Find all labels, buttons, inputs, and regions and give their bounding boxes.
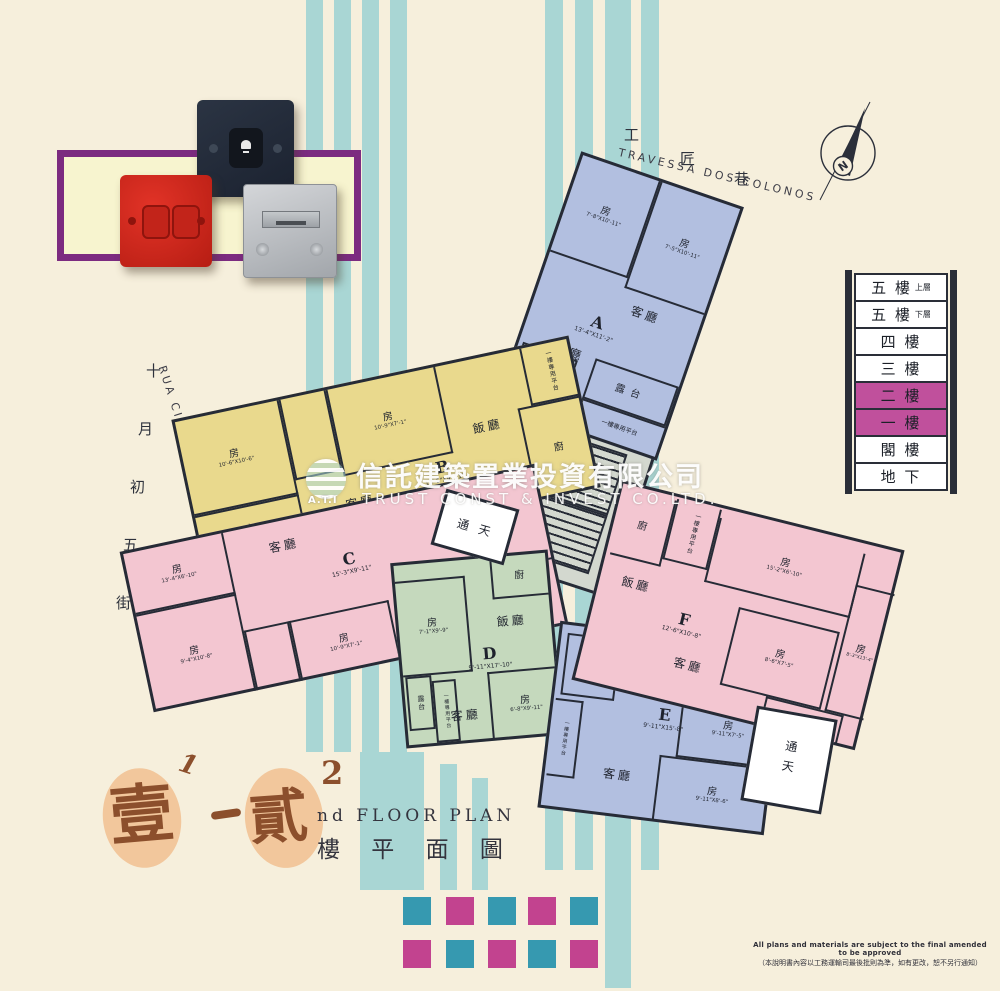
light-well: 通天 xyxy=(740,706,837,815)
street-name-cn: 初 xyxy=(130,476,145,497)
pattern-square xyxy=(528,940,556,968)
unit-label: A 13'-4"X11'-2" xyxy=(573,309,619,345)
screw-icon xyxy=(310,243,323,256)
bell-button xyxy=(229,128,263,168)
bedroom: 房 9'-4"X10'-8" xyxy=(136,594,256,712)
bell-icon-base xyxy=(243,151,249,153)
dining-room-label: 飯廳 xyxy=(496,611,527,631)
title-en: nd FLOOR PLAN xyxy=(317,806,515,826)
title-superscript-1: 1 xyxy=(175,748,201,782)
pattern-square xyxy=(403,897,431,925)
slot-opening xyxy=(276,221,306,225)
bell-icon xyxy=(241,140,251,149)
fuse-slot xyxy=(262,211,320,228)
silver-switch-photo xyxy=(243,184,337,278)
dining-room-label: 飯廳 xyxy=(471,414,504,437)
company-logo-text: A.T.I xyxy=(308,495,338,506)
bedroom: 房 8'-6"X7'-5" xyxy=(720,607,840,710)
title-superscript-2: 2 xyxy=(321,754,343,792)
bedroom: 房 15'-2"X6'-10" xyxy=(704,518,866,618)
red-switch-photo xyxy=(120,175,212,267)
page-title: 壹 1 貳 2 nd FLOOR PLAN 樓 平 面 圖 xyxy=(95,756,515,886)
street-name-cn: 月 xyxy=(138,418,153,439)
unit-label: C 15'-3"X9'-11" xyxy=(328,547,372,579)
private-flat-roof: 一樓專用平台 xyxy=(519,339,580,406)
title-char-2: 貳 xyxy=(246,768,310,856)
title-char-1: 壹 xyxy=(105,761,177,858)
living-room-label: 客廳 xyxy=(672,653,705,677)
living-room-label: 客廳 xyxy=(629,302,663,328)
screw-icon xyxy=(256,243,269,256)
pattern-square xyxy=(446,940,474,968)
company-logo-icon xyxy=(306,459,346,499)
bedroom: 房 10'-9"X7'-1" xyxy=(289,600,401,681)
title-dash xyxy=(211,808,242,820)
pattern-square xyxy=(403,940,431,968)
unit-label: D 9'-11"X17'-10" xyxy=(467,644,513,672)
legend-floor-row-highlighted: 二 樓 xyxy=(854,381,948,408)
screw-icon xyxy=(128,217,136,225)
company-name-en: TRUST CONST & INVEST CO.LTD. xyxy=(362,490,718,508)
living-room-label: 客廳 xyxy=(602,764,634,785)
pattern-square xyxy=(446,897,474,925)
legend-floor-row: 地 下 xyxy=(854,462,948,491)
dining-room-label: 飯廳 xyxy=(620,572,653,596)
brochure-page: 工 匠 巷 TRAVESSA DOS COLONOS 十 月 初 五 街 RUA… xyxy=(0,0,1000,991)
pattern-square xyxy=(570,940,598,968)
disclaimer-en: All plans and materials are subject to t… xyxy=(748,941,992,957)
floor-legend: 五 樓 上層 五 樓 下層 四 樓 三 樓 二 樓 一 樓 閣 樓 地 下 xyxy=(845,270,957,494)
pattern-square xyxy=(570,897,598,925)
bedroom: 房 7'-1"X9'-9" xyxy=(395,576,473,678)
private-flat-roof: 一樓專用平台 xyxy=(546,698,583,779)
screw-icon xyxy=(209,144,218,153)
pattern-square xyxy=(488,940,516,968)
rocker-switch xyxy=(142,205,170,239)
pattern-square xyxy=(488,897,516,925)
title-cn: 樓 平 面 圖 xyxy=(317,830,515,864)
north-compass-icon: N xyxy=(810,100,920,210)
disclaimer-cn: （本說明書內容以工務運輸司最後批則為準，如有更改，恕不另行通知） xyxy=(748,958,992,968)
legend-floor-row-highlighted: 一 樓 xyxy=(854,408,948,435)
disclaimer: All plans and materials are subject to t… xyxy=(748,941,992,968)
screw-icon xyxy=(273,144,282,153)
street-name-cn: 工 xyxy=(624,124,639,145)
unit-D: 房 7'-1"X9'-9" 廚 飯廳 D 9'-11"X17'-10" 客廳 房… xyxy=(390,549,564,748)
legend-floor-row: 五 樓 上層 xyxy=(854,273,948,300)
company-name-cn: 信託建築置業投資有限公司 xyxy=(356,455,704,494)
pattern-square xyxy=(528,897,556,925)
legend-floor-row: 三 樓 xyxy=(854,354,948,381)
screw-icon xyxy=(197,217,205,225)
rocker-switch xyxy=(172,205,200,239)
legend-floor-row: 四 樓 xyxy=(854,327,948,354)
private-flat-roof: 一樓專用平台 xyxy=(432,679,461,743)
living-room-label: 客廳 xyxy=(267,534,300,557)
legend-floor-row: 閣 樓 xyxy=(854,435,948,462)
legend-floor-row: 五 樓 下層 xyxy=(854,300,948,327)
unit-label: F 12'-6"X10'-8" xyxy=(661,608,706,641)
